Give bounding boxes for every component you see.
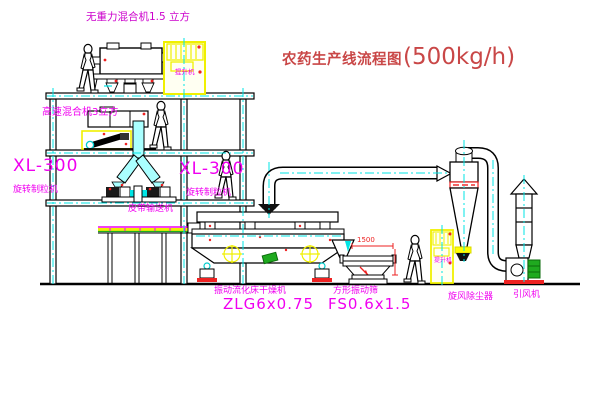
cyclone-separator: [450, 147, 512, 266]
person-figure-1: [77, 44, 98, 93]
fluid-bed-dryer-machine: [192, 212, 344, 282]
label-granulator-left-name: 旋转制粒机: [13, 186, 58, 195]
belt-conveyor-machine: [98, 223, 206, 283]
label-belt-conveyor: 皮带输送机: [128, 205, 173, 214]
label-elevator-right: 提升机: [434, 258, 452, 264]
person-figure-4: [404, 235, 425, 284]
vibrating-screen-machine: [332, 240, 398, 284]
label-screen-model: FS0.6x1.5: [328, 297, 411, 313]
label-screen-dimension: 1500: [357, 237, 375, 244]
granulator-right-machine: [142, 182, 176, 202]
label-granulator-right-model: XL-300: [179, 161, 244, 179]
label-dryer-model: ZLG6x0.75: [223, 297, 314, 313]
title-text: 农药生产线流程图: [282, 48, 402, 69]
granulator-left-machine: [102, 182, 136, 202]
page-title: 农药生产线流程图 (500kg/h): [282, 44, 515, 70]
dryer-foot: [197, 263, 332, 282]
gravity-free-mixer-machine: [88, 43, 174, 93]
pesticide-line-flow-diagram: 农药生产线流程图 (500kg/h) 无重力混合机1.5 立方 高速混合机3立方…: [0, 0, 600, 403]
person-figure-2: [150, 101, 171, 150]
label-granulator-right-name: 旋转制粒机: [186, 189, 231, 198]
label-gravity-mixer: 无重力混合机1.5 立方: [86, 12, 190, 23]
label-granulator-left-model: XL-300: [13, 158, 78, 176]
label-cyclone: 旋风除尘器: [448, 293, 493, 302]
title-capacity: (500kg/h): [403, 44, 515, 70]
granulator-support-column: [134, 186, 142, 202]
label-fan: 引风机: [513, 291, 540, 300]
label-elevator-top: 提升机: [175, 69, 195, 76]
label-high-speed-mixer: 高速混合机3立方: [42, 108, 118, 119]
